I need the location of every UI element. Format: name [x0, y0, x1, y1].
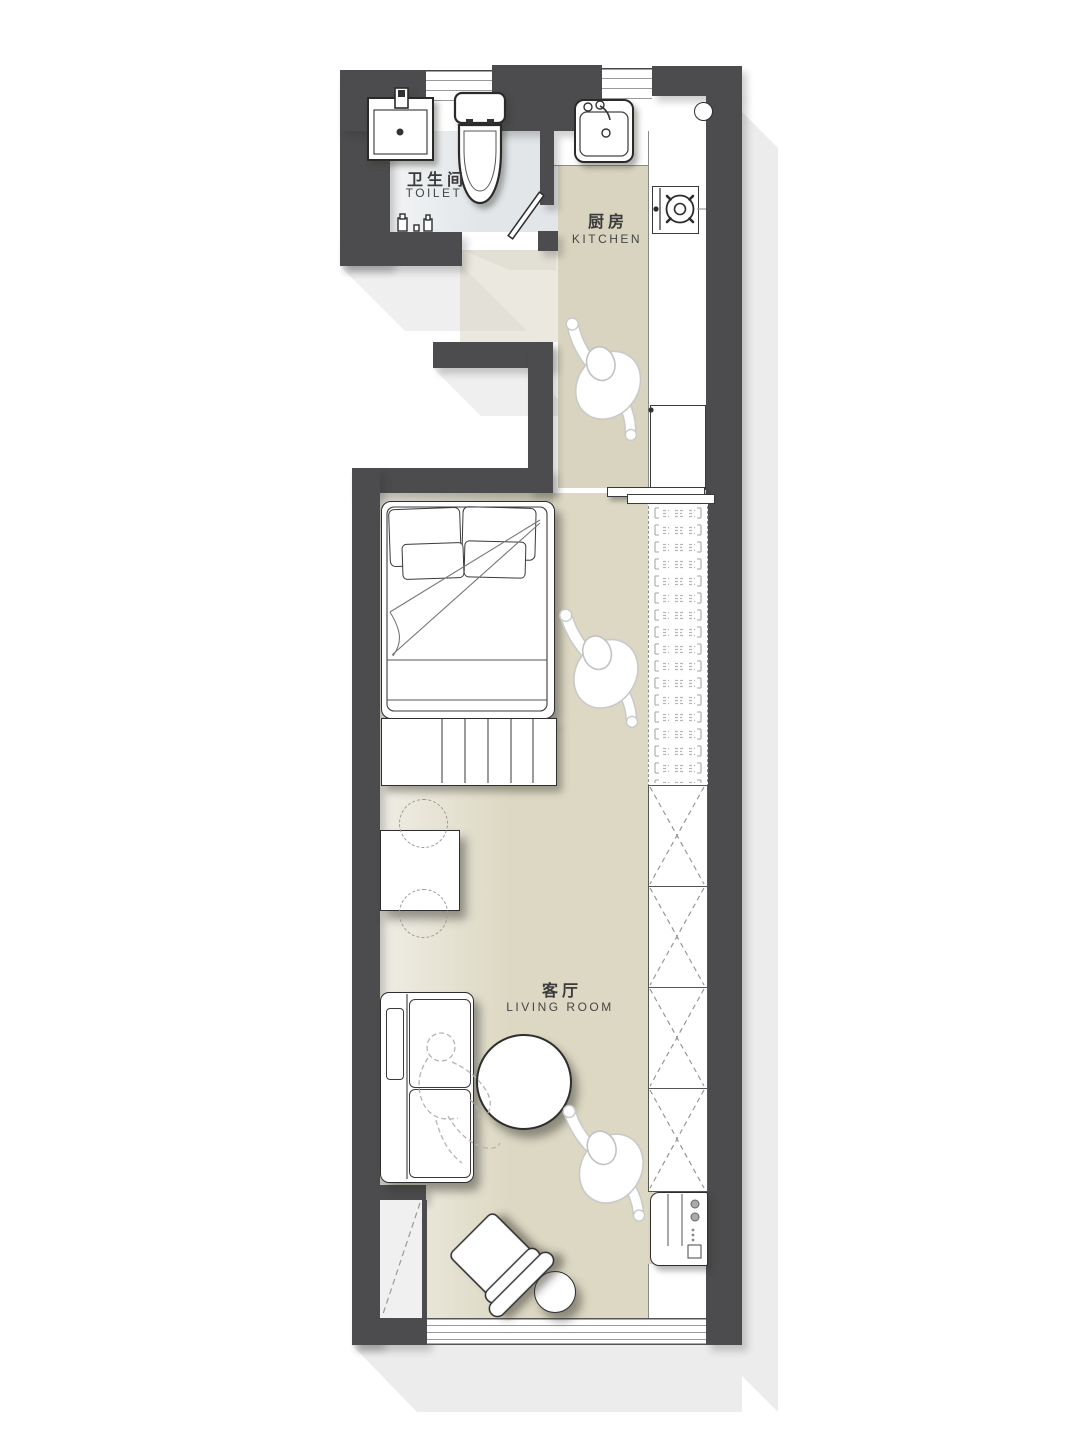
- window-top-left: [426, 70, 492, 131]
- balcony-closet: [380, 1200, 422, 1318]
- wall-right: [706, 95, 742, 1345]
- wall-bottom-left: [352, 1318, 427, 1345]
- kitchen-label-cn: 厨房: [588, 208, 628, 232]
- storage-cabinet-1: [648, 785, 708, 888]
- storage-cabinet-3: [648, 987, 708, 1090]
- sofa-cushion-top: [409, 999, 471, 1088]
- wall-top-right: [652, 66, 742, 96]
- entry-floor-patch: [460, 250, 558, 342]
- wall-closet-edge: [422, 1200, 427, 1318]
- floor-plan: 卫生间 TOILET 厨房 KITCHEN 客厅 LIVING ROOM: [0, 0, 1080, 1440]
- living-room-label-cn: 客厅: [542, 977, 582, 1001]
- storage-cabinet-4: [648, 1088, 708, 1192]
- storage-cabinet-2: [648, 886, 708, 989]
- wall-door-jamb: [538, 231, 558, 251]
- utility-counter-bottom: [648, 1264, 707, 1318]
- side-stool: [534, 1271, 576, 1313]
- bed-pillow-front-right: [464, 540, 527, 579]
- round-table: [476, 1034, 572, 1130]
- wall-toilet-right: [540, 131, 554, 205]
- wall-top-middle: [492, 65, 602, 131]
- gas-stove: [652, 186, 699, 234]
- sliding-door-panel-2: [627, 494, 715, 504]
- desk-chair-bottom: [399, 889, 448, 938]
- bed-foot-bench: [381, 718, 557, 786]
- wall-top-left: [340, 70, 426, 131]
- sofa-cushion-bottom: [409, 1089, 471, 1178]
- wall-bedroom-top: [352, 468, 553, 493]
- kitchen-label-en: KITCHEN: [572, 232, 642, 246]
- bed-pillow-front-left: [401, 542, 464, 580]
- desk-chair-top: [399, 799, 448, 848]
- fridge-cabinet: [650, 405, 706, 490]
- washing-machine: [650, 1192, 708, 1266]
- counter-outlet-circle: [694, 102, 713, 121]
- wall-left-main: [352, 468, 380, 1345]
- toilet-label-en: TOILET: [406, 186, 463, 200]
- living-room-label-en: LIVING ROOM: [506, 1000, 614, 1014]
- window-bottom: [427, 1318, 706, 1345]
- wall-sofa-stub: [380, 1185, 426, 1200]
- window-top-right: [602, 68, 652, 131]
- sofa-back-pillow: [386, 1008, 404, 1080]
- wall-toilet-bottom: [340, 232, 462, 266]
- hanging-wardrobe: [648, 501, 708, 787]
